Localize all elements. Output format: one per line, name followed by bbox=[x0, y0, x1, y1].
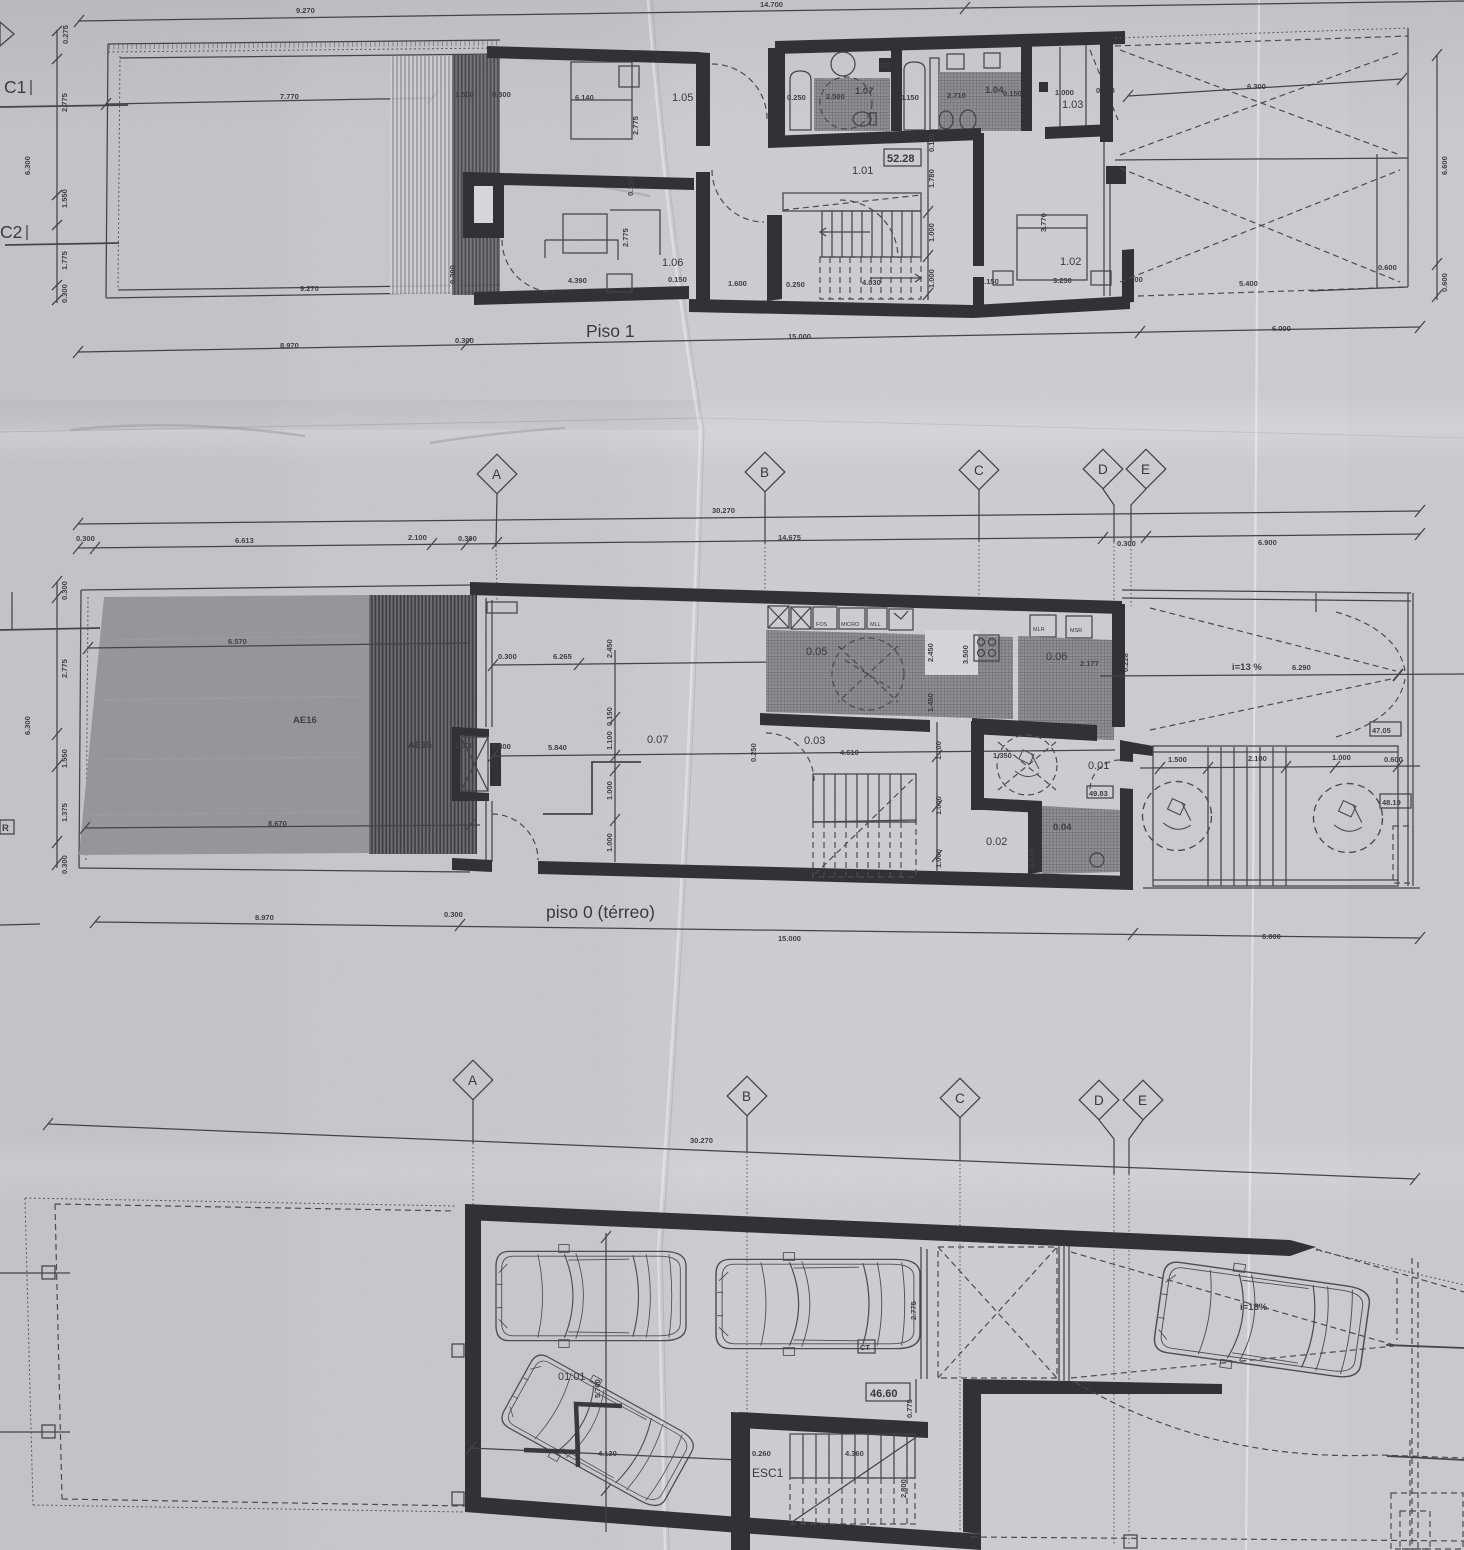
svg-text:0.07: 0.07 bbox=[647, 734, 668, 746]
svg-text:15.000: 15.000 bbox=[778, 934, 801, 943]
svg-text:6.300: 6.300 bbox=[23, 716, 32, 735]
svg-text:9.270: 9.270 bbox=[300, 284, 319, 293]
svg-text:D: D bbox=[1098, 462, 1108, 477]
svg-text:1.375: 1.375 bbox=[1027, 849, 1036, 868]
svg-text:0.300: 0.300 bbox=[444, 910, 463, 919]
svg-text:3.770: 3.770 bbox=[1039, 213, 1048, 232]
svg-text:9.270: 9.270 bbox=[296, 6, 315, 15]
svg-text:1.03: 1.03 bbox=[1062, 99, 1083, 111]
svg-text:B: B bbox=[760, 465, 769, 480]
svg-text:6.000: 6.000 bbox=[1272, 324, 1291, 333]
svg-text:1.000: 1.000 bbox=[605, 781, 614, 800]
svg-text:A: A bbox=[468, 1073, 477, 1088]
svg-text:GT: GT bbox=[880, 61, 891, 70]
svg-text:2.775: 2.775 bbox=[60, 659, 69, 678]
svg-text:0.260: 0.260 bbox=[752, 1449, 771, 1458]
svg-text:6.613: 6.613 bbox=[235, 536, 254, 545]
svg-text:6.290: 6.290 bbox=[1292, 663, 1311, 672]
svg-text:6.300: 6.300 bbox=[1247, 82, 1266, 91]
svg-text:1.07: 1.07 bbox=[855, 86, 874, 97]
svg-text:6.300: 6.300 bbox=[23, 156, 32, 175]
svg-text:MLL: MLL bbox=[870, 622, 881, 628]
svg-text:i=13 %: i=13 % bbox=[1232, 662, 1262, 673]
svg-text:1.000: 1.000 bbox=[1332, 753, 1351, 762]
svg-text:1.000: 1.000 bbox=[1055, 88, 1074, 97]
svg-text:2.775: 2.775 bbox=[631, 116, 640, 135]
svg-text:8.970: 8.970 bbox=[280, 341, 299, 350]
svg-text:E: E bbox=[1141, 462, 1150, 477]
svg-text:47.05: 47.05 bbox=[1372, 726, 1391, 735]
svg-text:0.300: 0.300 bbox=[1117, 539, 1136, 548]
svg-text:0.01: 0.01 bbox=[1088, 760, 1109, 772]
svg-text:C: C bbox=[974, 463, 984, 478]
svg-text:6.600: 6.600 bbox=[1440, 156, 1449, 175]
svg-text:MICRO: MICRO bbox=[841, 622, 860, 628]
svg-text:0.600: 0.600 bbox=[1440, 273, 1449, 292]
svg-text:AE15: AE15 bbox=[408, 740, 432, 751]
svg-text:0.03: 0.03 bbox=[804, 735, 825, 747]
svg-text:1.500: 1.500 bbox=[455, 741, 474, 750]
svg-text:1.04: 1.04 bbox=[985, 85, 1004, 96]
svg-text:C1: C1 bbox=[4, 77, 26, 97]
svg-text:0.300: 0.300 bbox=[455, 336, 474, 345]
svg-text:2.100: 2.100 bbox=[408, 533, 427, 542]
svg-text:D: D bbox=[1094, 1093, 1104, 1108]
svg-text:4.360: 4.360 bbox=[845, 1449, 864, 1458]
svg-text:Piso 1: Piso 1 bbox=[586, 321, 635, 341]
svg-text:E: E bbox=[1138, 1093, 1147, 1108]
svg-text:0.150: 0.150 bbox=[626, 177, 635, 196]
svg-text:piso 0 (térreo): piso 0 (térreo) bbox=[546, 902, 655, 922]
svg-text:6.000: 6.000 bbox=[1262, 932, 1281, 941]
svg-text:2.710: 2.710 bbox=[947, 91, 966, 100]
svg-text:1.450: 1.450 bbox=[926, 693, 935, 712]
svg-text:0.04: 0.04 bbox=[1053, 822, 1072, 833]
svg-text:1.300: 1.300 bbox=[492, 742, 511, 751]
svg-text:2.775: 2.775 bbox=[909, 1301, 918, 1320]
svg-text:30.270: 30.270 bbox=[712, 506, 735, 515]
svg-text:0.600: 0.600 bbox=[1378, 263, 1397, 272]
svg-text:5.700: 5.700 bbox=[593, 1379, 602, 1398]
svg-text:46.60: 46.60 bbox=[870, 1388, 898, 1400]
svg-text:1.05: 1.05 bbox=[672, 92, 693, 104]
svg-text:C: C bbox=[955, 1091, 965, 1106]
svg-text:30.270: 30.270 bbox=[690, 1136, 713, 1145]
svg-text:0.250: 0.250 bbox=[749, 743, 758, 762]
svg-text:52.28: 52.28 bbox=[887, 153, 915, 165]
svg-text:14.700: 14.700 bbox=[760, 0, 783, 9]
svg-text:0.300: 0.300 bbox=[498, 652, 517, 661]
svg-text:8.970: 8.970 bbox=[255, 913, 274, 922]
svg-text:0.250: 0.250 bbox=[787, 93, 806, 102]
svg-text:1.550: 1.550 bbox=[60, 189, 69, 208]
svg-text:3.500: 3.500 bbox=[961, 645, 970, 664]
svg-text:2.177: 2.177 bbox=[1080, 659, 1099, 668]
svg-text:R: R bbox=[2, 823, 9, 834]
svg-text:4.390: 4.390 bbox=[568, 276, 587, 285]
svg-text:6.900: 6.900 bbox=[1258, 538, 1277, 547]
svg-text:0.300: 0.300 bbox=[458, 534, 477, 543]
svg-text:1.350: 1.350 bbox=[993, 751, 1012, 760]
svg-text:0.600: 0.600 bbox=[1384, 755, 1403, 764]
svg-text:MLR: MLR bbox=[1033, 627, 1045, 633]
svg-text:1.775: 1.775 bbox=[60, 251, 69, 270]
svg-text:2.450: 2.450 bbox=[926, 643, 935, 662]
svg-text:8.670: 8.670 bbox=[268, 819, 287, 828]
svg-text:2.775: 2.775 bbox=[621, 228, 630, 247]
svg-text:0.300: 0.300 bbox=[76, 534, 95, 543]
svg-text:1.550: 1.550 bbox=[60, 749, 69, 768]
svg-text:1.02: 1.02 bbox=[1060, 256, 1081, 268]
svg-text:0.150: 0.150 bbox=[605, 707, 614, 726]
svg-text:1.100: 1.100 bbox=[605, 731, 614, 750]
svg-text:5.840: 5.840 bbox=[548, 743, 567, 752]
svg-text:1.375: 1.375 bbox=[60, 803, 69, 822]
svg-text:0.150: 0.150 bbox=[1003, 89, 1022, 98]
svg-text:1.01: 1.01 bbox=[852, 165, 873, 177]
svg-text:CT: CT bbox=[860, 1343, 870, 1352]
svg-text:6.570: 6.570 bbox=[228, 637, 247, 646]
svg-text:FOS: FOS bbox=[816, 622, 828, 628]
svg-text:AE16: AE16 bbox=[293, 715, 317, 726]
svg-text:0.300: 0.300 bbox=[60, 581, 69, 600]
svg-text:0.775: 0.775 bbox=[905, 1399, 914, 1418]
svg-text:1.600: 1.600 bbox=[728, 279, 747, 288]
svg-text:1.500: 1.500 bbox=[455, 90, 474, 99]
svg-text:0.06: 0.06 bbox=[1046, 651, 1067, 663]
svg-text:4.610: 4.610 bbox=[840, 748, 859, 757]
svg-text:0.150: 0.150 bbox=[668, 275, 687, 284]
svg-text:0.300: 0.300 bbox=[448, 265, 457, 284]
svg-text:49.83: 49.83 bbox=[1089, 789, 1108, 798]
svg-text:B: B bbox=[742, 1089, 751, 1104]
svg-text:1.000: 1.000 bbox=[605, 833, 614, 852]
svg-text:48.19: 48.19 bbox=[1382, 798, 1401, 807]
svg-text:4.130: 4.130 bbox=[598, 1449, 617, 1458]
svg-text:0.02: 0.02 bbox=[986, 836, 1007, 848]
svg-text:6.140: 6.140 bbox=[575, 93, 594, 102]
svg-text:ESC1: ESC1 bbox=[752, 1466, 784, 1480]
svg-text:0.150: 0.150 bbox=[900, 93, 919, 102]
svg-text:MSR: MSR bbox=[1070, 628, 1082, 634]
svg-text:7.770: 7.770 bbox=[280, 92, 299, 101]
svg-text:5.400: 5.400 bbox=[1239, 279, 1258, 288]
svg-text:2.800: 2.800 bbox=[899, 1479, 908, 1498]
svg-text:15.000: 15.000 bbox=[788, 332, 811, 341]
svg-text:2.450: 2.450 bbox=[605, 639, 614, 658]
svg-text:2.100: 2.100 bbox=[1248, 754, 1267, 763]
svg-text:1.000: 1.000 bbox=[934, 796, 943, 815]
svg-text:0.250: 0.250 bbox=[786, 280, 805, 289]
svg-text:0.05: 0.05 bbox=[806, 646, 827, 658]
svg-text:01.01: 01.01 bbox=[558, 1371, 586, 1383]
svg-text:2.500: 2.500 bbox=[826, 92, 845, 101]
svg-text:0.300: 0.300 bbox=[492, 90, 511, 99]
svg-text:0.275: 0.275 bbox=[61, 25, 70, 44]
svg-text:A: A bbox=[492, 467, 501, 482]
svg-text:0.300: 0.300 bbox=[60, 284, 69, 303]
svg-text:0.300: 0.300 bbox=[60, 855, 69, 874]
svg-text:1.500: 1.500 bbox=[1168, 755, 1187, 764]
svg-text:C2: C2 bbox=[0, 222, 22, 242]
svg-text:6.265: 6.265 bbox=[553, 652, 572, 661]
svg-text:14.675: 14.675 bbox=[778, 533, 801, 542]
svg-text:2.775: 2.775 bbox=[60, 93, 69, 112]
svg-text:1.06: 1.06 bbox=[662, 257, 683, 269]
